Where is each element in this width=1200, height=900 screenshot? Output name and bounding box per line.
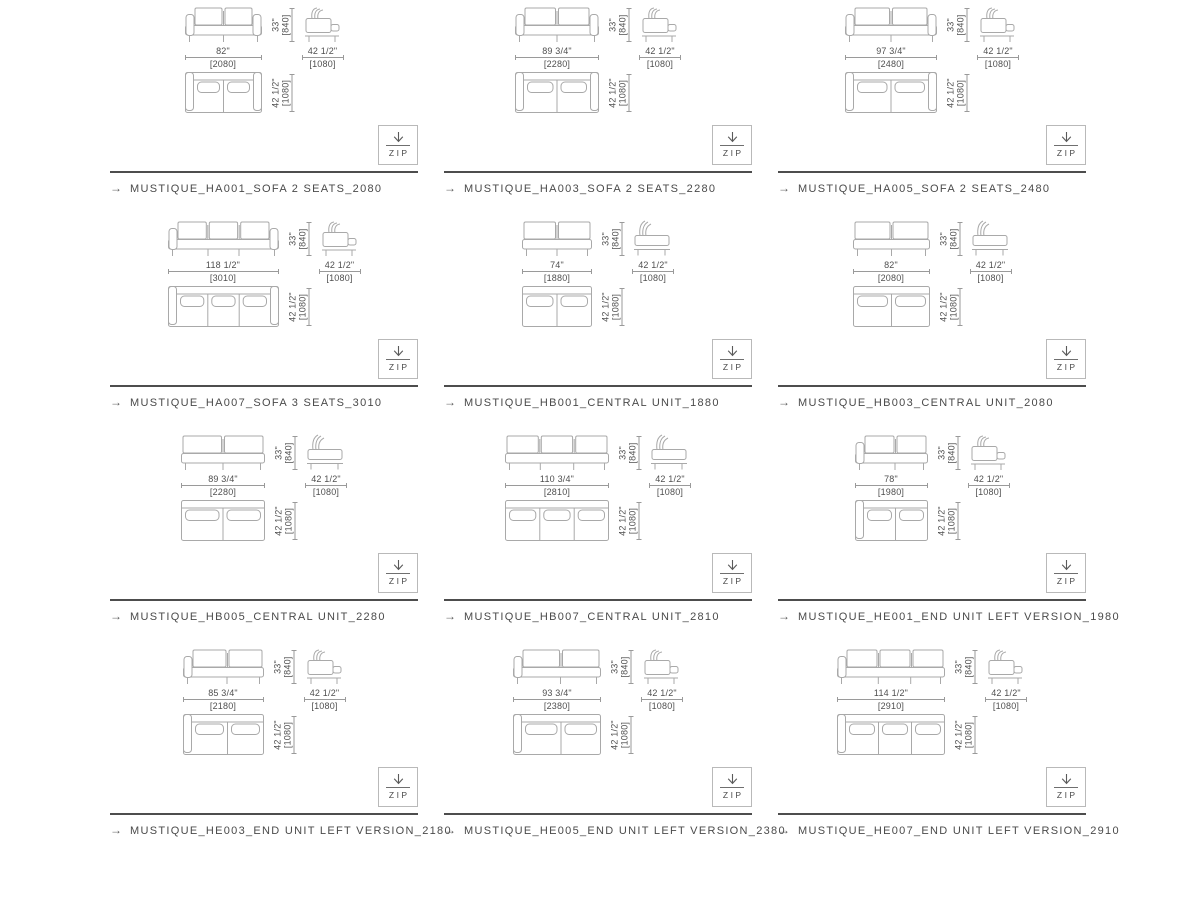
zip-row: ZIP — [444, 767, 752, 807]
zip-label: ZIP — [720, 148, 743, 158]
depth-dimension: 42 1/2" [1080] — [649, 474, 691, 497]
zip-label: ZIP — [386, 148, 409, 158]
height-mm-label: [840] — [284, 442, 294, 463]
depth-dimension: 42 1/2" [1080] — [977, 46, 1019, 69]
width-dimension: 82" [2080] — [853, 260, 930, 283]
product-name: MUSTIQUE_HB005_CENTRAL UNIT_2280 — [130, 611, 386, 624]
right-arrow-icon: → — [110, 824, 122, 836]
depth-inches-label: 42 1/2" — [305, 474, 347, 484]
dimension-line — [855, 485, 928, 486]
front-view-drawing — [522, 220, 592, 257]
right-arrow-icon: → — [778, 182, 790, 194]
zip-divider — [720, 787, 744, 788]
dimension-line — [837, 699, 945, 700]
height-dimension: 33" [840] — [600, 220, 624, 257]
plan-view-drawing — [181, 500, 265, 541]
height-mm-label: [840] — [280, 14, 290, 35]
height-mm-label: [840] — [964, 656, 974, 677]
depth-inches-label: 42 1/2" — [319, 260, 361, 270]
dimension-line — [959, 222, 960, 256]
depth-mm-label: [1080] — [977, 59, 1019, 69]
zip-label: ZIP — [386, 576, 409, 586]
product-name: MUSTIQUE_HE005_END UNIT LEFT VERSION_238… — [464, 825, 786, 838]
plan-depth-dimension: 42 1/2" [1080] — [272, 714, 296, 755]
plan-depth-dimension: 42 1/2" [1080] — [945, 72, 969, 113]
zip-row: ZIP — [778, 767, 1086, 807]
depth-dimension: 42 1/2" [1080] — [304, 688, 346, 711]
product-card: 33" [840] 118 1/2" [3010] 42 1/2" [1080]… — [110, 220, 418, 410]
height-inches-label: 33" — [938, 232, 948, 246]
dimension-line — [845, 57, 937, 58]
height-mm-label: [840] — [297, 228, 307, 249]
depth-inches-label: 42 1/2" — [274, 506, 284, 536]
product-name: MUSTIQUE_HA005_SOFA 2 SEATS_2480 — [798, 183, 1050, 196]
dimension-line — [185, 57, 262, 58]
depth-mm-label: [1080] — [970, 273, 1012, 283]
right-arrow-icon: → — [110, 182, 122, 194]
height-mm-label: [840] — [611, 228, 621, 249]
height-mm-label: [840] — [618, 14, 628, 35]
plan-view-drawing — [168, 286, 279, 327]
depth-inches-label: 42 1/2" — [977, 46, 1019, 56]
dimension-line — [957, 436, 958, 470]
dimension-line — [968, 485, 1010, 486]
width-mm-label: [2080] — [853, 273, 930, 283]
card-separator — [778, 385, 1086, 387]
dimension-line — [304, 699, 346, 700]
height-dimension: 33" [840] — [609, 648, 633, 685]
height-dimension: 33" [840] — [272, 648, 296, 685]
height-mm-label: [840] — [956, 14, 966, 35]
side-view-drawing — [632, 220, 674, 257]
card-separator — [444, 599, 752, 601]
height-mm-label: [840] — [946, 442, 956, 463]
right-arrow-icon: → — [444, 182, 456, 194]
product-link[interactable]: → MUSTIQUE_HA003_SOFA 2 SEATS_2280 — [444, 182, 752, 196]
front-view-drawing — [845, 6, 937, 43]
card-separator — [110, 385, 418, 387]
depth-inches-label: 42 1/2" — [618, 506, 628, 536]
zip-download-button[interactable]: ZIP — [712, 339, 752, 379]
width-dimension: 85 3/4" [2180] — [183, 688, 264, 711]
technical-drawing-cluster: 33" [840] 82" [2080] 42 1/2" [1080] 42 1… — [110, 6, 418, 113]
zip-row: ZIP — [110, 767, 418, 807]
dimension-line — [293, 650, 294, 684]
width-dimension: 97 3/4" [2480] — [845, 46, 937, 69]
zip-divider — [1054, 787, 1078, 788]
width-inches-label: 93 3/4" — [513, 688, 601, 698]
zip-row: ZIP — [778, 553, 1086, 593]
dimension-line — [302, 57, 344, 58]
dimension-line — [631, 716, 632, 754]
depth-mm-label: [1080] — [304, 701, 346, 711]
depth-mm-label: [1080] — [620, 721, 630, 747]
dimension-line — [629, 74, 630, 112]
depth-dimension: 42 1/2" [1080] — [319, 260, 361, 283]
dimension-line — [622, 288, 623, 326]
depth-inches-label: 42 1/2" — [302, 46, 344, 56]
product-link[interactable]: → MUSTIQUE_HB003_CENTRAL UNIT_2080 — [778, 396, 1086, 410]
depth-inches-label: 42 1/2" — [946, 78, 956, 108]
plan-view-drawing — [505, 500, 609, 541]
technical-drawing-cluster: 33" [840] 97 3/4" [2480] 42 1/2" [1080] … — [778, 6, 1086, 113]
depth-mm-label: [1080] — [302, 59, 344, 69]
plan-depth-dimension: 42 1/2" [1080] — [953, 714, 977, 755]
zip-row: ZIP — [778, 125, 1086, 165]
download-arrow-icon — [391, 774, 406, 786]
zip-label: ZIP — [720, 362, 743, 372]
height-inches-label: 33" — [936, 446, 946, 460]
card-separator — [778, 599, 1086, 601]
width-dimension: 82" [2080] — [185, 46, 262, 69]
width-dimension: 74" [1880] — [522, 260, 592, 283]
dimension-line — [622, 222, 623, 256]
technical-drawing-cluster: 33" [840] 89 3/4" [2280] 42 1/2" [1080] … — [110, 434, 418, 541]
width-inches-label: 114 1/2" — [837, 688, 945, 698]
depth-mm-label: [1080] — [641, 701, 683, 711]
dimension-line — [291, 74, 292, 112]
depth-mm-label: [1080] — [297, 293, 307, 319]
technical-drawing-cluster: 33" [840] 110 3/4" [2810] 42 1/2" [1080]… — [444, 434, 752, 541]
catalog-page: { "page": { "background": "#ffffff" }, "… — [0, 0, 1200, 900]
side-view-drawing — [305, 434, 347, 471]
depth-mm-label: [1080] — [649, 487, 691, 497]
dimension-line — [975, 650, 976, 684]
front-view-drawing — [185, 6, 262, 43]
zip-divider — [1054, 145, 1078, 146]
zip-download-button[interactable]: ZIP — [1046, 339, 1086, 379]
dimension-line — [295, 436, 296, 470]
front-view-drawing — [515, 6, 599, 43]
product-link[interactable]: → MUSTIQUE_HA007_SOFA 3 SEATS_3010 — [110, 396, 418, 410]
card-separator — [444, 813, 752, 815]
dimension-line — [505, 485, 609, 486]
depth-inches-label: 42 1/2" — [272, 720, 282, 750]
width-dimension: 89 3/4" [2280] — [515, 46, 599, 69]
dimension-line — [649, 485, 691, 486]
zip-divider — [386, 359, 410, 360]
download-arrow-icon — [725, 132, 740, 144]
width-inches-label: 85 3/4" — [183, 688, 264, 698]
zip-label: ZIP — [720, 790, 743, 800]
depth-inches-label: 42 1/2" — [270, 78, 280, 108]
depth-dimension: 42 1/2" [1080] — [302, 46, 344, 69]
dimension-line — [308, 288, 309, 326]
front-view-drawing — [837, 648, 945, 685]
depth-inches-label: 42 1/2" — [954, 720, 964, 750]
side-view-drawing — [319, 220, 361, 257]
side-view-drawing — [977, 6, 1019, 43]
dimension-line — [183, 699, 264, 700]
dimension-line — [632, 271, 674, 272]
zip-row: ZIP — [444, 339, 752, 379]
depth-mm-label: [1080] — [618, 79, 628, 105]
product-name: MUSTIQUE_HB007_CENTRAL UNIT_2810 — [464, 611, 720, 624]
card-separator — [444, 385, 752, 387]
width-dimension: 110 3/4" [2810] — [505, 474, 609, 497]
height-dimension: 33" [840] — [936, 434, 960, 471]
download-arrow-icon — [725, 774, 740, 786]
zip-download-button[interactable]: ZIP — [712, 767, 752, 807]
right-arrow-icon: → — [444, 824, 456, 836]
side-view-drawing — [649, 434, 691, 471]
dimension-line — [515, 57, 599, 58]
dimension-line — [639, 436, 640, 470]
depth-mm-label: [1080] — [628, 507, 638, 533]
product-link[interactable]: → MUSTIQUE_HA005_SOFA 2 SEATS_2480 — [778, 182, 1086, 196]
zip-divider — [720, 359, 744, 360]
height-dimension: 33" [840] — [938, 220, 962, 257]
product-link[interactable]: → MUSTIQUE_HE001_END UNIT LEFT VERSION_1… — [778, 610, 1086, 624]
zip-download-button[interactable]: ZIP — [712, 125, 752, 165]
height-inches-label: 33" — [274, 446, 284, 460]
depth-mm-label: [1080] — [280, 79, 290, 105]
dimension-line — [305, 485, 347, 486]
product-name: MUSTIQUE_HB001_CENTRAL UNIT_1880 — [464, 397, 720, 410]
dimension-line — [293, 716, 294, 754]
depth-mm-label: [1080] — [948, 293, 958, 319]
width-mm-label: [1880] — [522, 273, 592, 283]
width-inches-label: 97 3/4" — [845, 46, 937, 56]
zip-divider — [1054, 359, 1078, 360]
zip-label: ZIP — [386, 790, 409, 800]
height-dimension: 33" [840] — [945, 6, 969, 43]
front-view-drawing — [505, 434, 609, 471]
side-view-drawing — [968, 434, 1010, 471]
zip-divider — [720, 573, 744, 574]
width-dimension: 93 3/4" [2380] — [513, 688, 601, 711]
download-arrow-icon — [725, 346, 740, 358]
right-arrow-icon: → — [778, 824, 790, 836]
dimension-line — [977, 57, 1019, 58]
technical-drawing-cluster: 33" [840] 89 3/4" [2280] 42 1/2" [1080] … — [444, 6, 752, 113]
depth-inches-label: 42 1/2" — [287, 292, 297, 322]
width-dimension: 118 1/2" [3010] — [168, 260, 279, 283]
product-link[interactable]: → MUSTIQUE_HA001_SOFA 2 SEATS_2080 — [110, 182, 418, 196]
dimension-line — [641, 699, 683, 700]
product-card: 33" [840] 114 1/2" [2910] 42 1/2" [1080]… — [778, 648, 1086, 838]
width-mm-label: [2080] — [185, 59, 262, 69]
right-arrow-icon: → — [778, 396, 790, 408]
zip-row: ZIP — [110, 125, 418, 165]
height-dimension: 33" [840] — [617, 434, 641, 471]
zip-row: ZIP — [110, 553, 418, 593]
depth-inches-label: 42 1/2" — [938, 292, 948, 322]
download-arrow-icon — [391, 132, 406, 144]
width-inches-label: 78" — [855, 474, 928, 484]
zip-download-button[interactable]: ZIP — [378, 125, 418, 165]
plan-view-drawing — [837, 714, 945, 755]
side-view-drawing — [304, 648, 346, 685]
product-card: 33" [840] 82" [2080] 42 1/2" [1080] 42 1… — [778, 220, 1086, 410]
download-arrow-icon — [1059, 774, 1074, 786]
width-inches-label: 74" — [522, 260, 592, 270]
zip-download-button[interactable]: ZIP — [1046, 125, 1086, 165]
depth-mm-label: [1080] — [964, 721, 974, 747]
width-dimension: 114 1/2" [2910] — [837, 688, 945, 711]
product-card: 33" [840] 82" [2080] 42 1/2" [1080] 42 1… — [110, 6, 418, 196]
zip-download-button[interactable]: ZIP — [378, 553, 418, 593]
card-separator — [778, 813, 1086, 815]
width-dimension: 78" [1980] — [855, 474, 928, 497]
zip-label: ZIP — [1054, 790, 1077, 800]
front-view-drawing — [168, 220, 279, 257]
depth-dimension: 42 1/2" [1080] — [970, 260, 1012, 283]
zip-label: ZIP — [1054, 362, 1077, 372]
product-name: MUSTIQUE_HA001_SOFA 2 SEATS_2080 — [130, 183, 382, 196]
height-inches-label: 33" — [618, 446, 628, 460]
dimension-line — [967, 74, 968, 112]
plan-depth-dimension: 42 1/2" [1080] — [273, 500, 297, 541]
product-card: 33" [840] 74" [1880] 42 1/2" [1080] 42 1… — [444, 220, 752, 410]
product-card: 33" [840] 89 3/4" [2280] 42 1/2" [1080] … — [110, 434, 418, 624]
depth-dimension: 42 1/2" [1080] — [305, 474, 347, 497]
depth-mm-label: [1080] — [985, 701, 1027, 711]
side-view-drawing — [639, 6, 681, 43]
zip-download-button[interactable]: ZIP — [378, 767, 418, 807]
plan-view-drawing — [515, 72, 599, 113]
depth-inches-label: 42 1/2" — [970, 260, 1012, 270]
depth-dimension: 42 1/2" [1080] — [639, 46, 681, 69]
product-card: 33" [840] 110 3/4" [2810] 42 1/2" [1080]… — [444, 434, 752, 624]
zip-label: ZIP — [1054, 148, 1077, 158]
depth-mm-label: [1080] — [639, 59, 681, 69]
zip-download-button[interactable]: ZIP — [712, 553, 752, 593]
plan-view-drawing — [845, 72, 937, 113]
right-arrow-icon: → — [778, 610, 790, 622]
dimension-line — [967, 8, 968, 42]
zip-divider — [386, 573, 410, 574]
height-mm-label: [840] — [620, 656, 630, 677]
plan-depth-dimension: 42 1/2" [1080] — [617, 500, 641, 541]
zip-download-button[interactable]: ZIP — [1046, 767, 1086, 807]
dimension-line — [959, 288, 960, 326]
product-name: MUSTIQUE_HE003_END UNIT LEFT VERSION_218… — [130, 825, 452, 838]
download-arrow-icon — [1059, 346, 1074, 358]
depth-inches-label: 42 1/2" — [608, 78, 618, 108]
card-separator — [110, 171, 418, 173]
right-arrow-icon: → — [110, 396, 122, 408]
right-arrow-icon: → — [444, 396, 456, 408]
depth-inches-label: 42 1/2" — [632, 260, 674, 270]
depth-mm-label: [1080] — [282, 721, 292, 747]
dimension-line — [957, 502, 958, 540]
technical-drawing-cluster: 33" [840] 93 3/4" [2380] 42 1/2" [1080] … — [444, 648, 752, 755]
plan-view-drawing — [853, 286, 930, 327]
depth-mm-label: [1080] — [284, 507, 294, 533]
depth-inches-label: 42 1/2" — [968, 474, 1010, 484]
height-mm-label: [840] — [282, 656, 292, 677]
front-view-drawing — [853, 220, 930, 257]
width-inches-label: 89 3/4" — [181, 474, 265, 484]
zip-download-button[interactable]: ZIP — [378, 339, 418, 379]
zip-download-button[interactable]: ZIP — [1046, 553, 1086, 593]
product-link[interactable]: → MUSTIQUE_HB001_CENTRAL UNIT_1880 — [444, 396, 752, 410]
depth-mm-label: [1080] — [632, 273, 674, 283]
depth-dimension: 42 1/2" [1080] — [985, 688, 1027, 711]
dimension-line — [295, 502, 296, 540]
width-mm-label: [2480] — [845, 59, 937, 69]
height-inches-label: 33" — [270, 18, 280, 32]
product-card: 33" [840] 85 3/4" [2180] 42 1/2" [1080] … — [110, 648, 418, 838]
plan-depth-dimension: 42 1/2" [1080] — [609, 714, 633, 755]
product-link[interactable]: → MUSTIQUE_HB007_CENTRAL UNIT_2810 — [444, 610, 752, 624]
front-view-drawing — [513, 648, 601, 685]
product-name: MUSTIQUE_HE001_END UNIT LEFT VERSION_198… — [798, 611, 1120, 624]
product-name: MUSTIQUE_HB003_CENTRAL UNIT_2080 — [798, 397, 1054, 410]
front-view-drawing — [181, 434, 265, 471]
plan-view-drawing — [185, 72, 262, 113]
technical-drawing-cluster: 33" [840] 78" [1980] 42 1/2" [1080] 42 1… — [778, 434, 1086, 541]
depth-inches-label: 42 1/2" — [304, 688, 346, 698]
technical-drawing-cluster: 33" [840] 118 1/2" [3010] 42 1/2" [1080]… — [110, 220, 418, 327]
dimension-line — [319, 271, 361, 272]
side-view-drawing — [302, 6, 344, 43]
product-link[interactable]: → MUSTIQUE_HE007_END UNIT LEFT VERSION_2… — [778, 824, 1086, 838]
height-inches-label: 33" — [272, 660, 282, 674]
depth-inches-label: 42 1/2" — [641, 688, 683, 698]
height-dimension: 33" [840] — [273, 434, 297, 471]
zip-divider — [386, 145, 410, 146]
product-link[interactable]: → MUSTIQUE_HE005_END UNIT LEFT VERSION_2… — [444, 824, 752, 838]
technical-drawing-cluster: 33" [840] 74" [1880] 42 1/2" [1080] 42 1… — [444, 220, 752, 327]
height-dimension: 33" [840] — [287, 220, 311, 257]
download-arrow-icon — [725, 560, 740, 572]
product-card: 33" [840] 78" [1980] 42 1/2" [1080] 42 1… — [778, 434, 1086, 624]
right-arrow-icon: → — [444, 610, 456, 622]
depth-mm-label: [1080] — [968, 487, 1010, 497]
height-inches-label: 33" — [610, 660, 620, 674]
dimension-line — [853, 271, 930, 272]
width-mm-label: [2810] — [505, 487, 609, 497]
height-dimension: 33" [840] — [607, 6, 631, 43]
width-inches-label: 82" — [185, 46, 262, 56]
zip-divider — [720, 145, 744, 146]
depth-inches-label: 42 1/2" — [639, 46, 681, 56]
depth-inches-label: 42 1/2" — [936, 506, 946, 536]
dimension-line — [522, 271, 592, 272]
height-inches-label: 33" — [601, 232, 611, 246]
depth-dimension: 42 1/2" [1080] — [968, 474, 1010, 497]
width-mm-label: [2280] — [515, 59, 599, 69]
dimension-line — [975, 716, 976, 754]
download-arrow-icon — [391, 346, 406, 358]
width-mm-label: [2280] — [181, 487, 265, 497]
plan-depth-dimension: 42 1/2" [1080] — [607, 72, 631, 113]
product-card: 33" [840] 93 3/4" [2380] 42 1/2" [1080] … — [444, 648, 752, 838]
front-view-drawing — [855, 434, 928, 471]
dimension-line — [639, 502, 640, 540]
side-view-drawing — [970, 220, 1012, 257]
height-mm-label: [840] — [628, 442, 638, 463]
card-separator — [110, 599, 418, 601]
width-mm-label: [2380] — [513, 701, 601, 711]
card-separator — [778, 171, 1086, 173]
depth-mm-label: [1080] — [305, 487, 347, 497]
download-arrow-icon — [391, 560, 406, 572]
product-link[interactable]: → MUSTIQUE_HB005_CENTRAL UNIT_2280 — [110, 610, 418, 624]
width-inches-label: 82" — [853, 260, 930, 270]
height-inches-label: 33" — [287, 232, 297, 246]
height-mm-label: [840] — [948, 228, 958, 249]
width-inches-label: 118 1/2" — [168, 260, 279, 270]
zip-label: ZIP — [1054, 576, 1077, 586]
dimension-line — [168, 271, 279, 272]
plan-depth-dimension: 42 1/2" [1080] — [287, 286, 311, 327]
product-link[interactable]: → MUSTIQUE_HE003_END UNIT LEFT VERSION_2… — [110, 824, 418, 838]
width-mm-label: [2180] — [183, 701, 264, 711]
depth-mm-label: [1080] — [946, 507, 956, 533]
